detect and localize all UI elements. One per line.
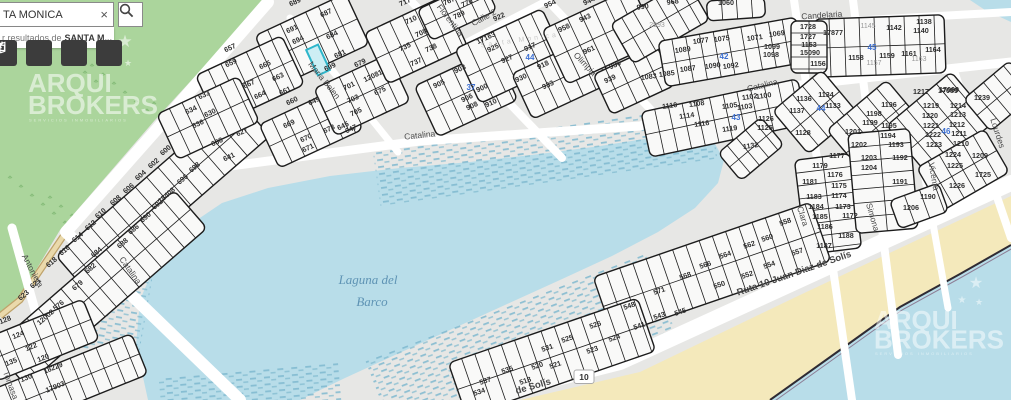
search-button[interactable] xyxy=(118,2,143,27)
parcel-number: 17877 xyxy=(823,28,843,37)
block-number-annotation: 45 xyxy=(868,43,877,52)
parcel-number: 1199 xyxy=(862,118,878,127)
parcel-number: 17099 xyxy=(939,85,959,94)
parcel-number: 1136 xyxy=(796,94,812,103)
parcel-number: 1175 xyxy=(831,181,847,190)
search-input-box: × xyxy=(0,2,114,27)
parcel-number: 1142 xyxy=(886,23,902,32)
parcel-number: 1194 xyxy=(880,131,896,140)
city-block xyxy=(706,0,765,21)
block-number-annotation: 43 xyxy=(732,113,741,122)
parcel-number: 1176 xyxy=(827,170,843,179)
block-number-annotation: 42 xyxy=(720,52,729,61)
parcel-number: 1164 xyxy=(925,45,941,54)
map-canvas[interactable]: 6896876916946846816996791208170170370567… xyxy=(0,0,1011,400)
star-icon: ★ xyxy=(975,297,983,307)
map-layers-button[interactable] xyxy=(96,40,122,66)
parcel-number: 1220 xyxy=(922,111,938,120)
star-icon: ★ xyxy=(958,295,967,306)
parcel-number: 1196 xyxy=(881,100,897,109)
parcel-number: 1186 xyxy=(817,222,833,231)
clear-search-icon[interactable]: × xyxy=(98,8,113,21)
block-number-annotation: 44 xyxy=(817,104,826,113)
parcel-number: 1183 xyxy=(806,192,822,201)
parcel-number: 1187 xyxy=(816,241,832,250)
parcel-number: 1225 xyxy=(947,161,963,170)
parcel-number: 1134 xyxy=(818,90,834,99)
parcel-number: 1217 xyxy=(913,87,929,96)
parcel-number: 1128 xyxy=(795,128,811,137)
parcel-number: 1725 xyxy=(975,170,991,179)
parcel-number: 1133 xyxy=(825,101,841,110)
watermark-line2: BROKERS xyxy=(28,90,158,120)
parcel-number: 1213 xyxy=(950,110,966,119)
block-number-annotation: 37 xyxy=(467,83,476,92)
parcel-number: 1203 xyxy=(861,153,877,162)
parcel-number: 15090 xyxy=(800,48,820,57)
parcel-number: 1177 xyxy=(829,151,845,160)
parcel-number: 1223 xyxy=(926,140,942,149)
parcel-number: 1137 xyxy=(789,106,805,115)
parcel-number: 1098 xyxy=(763,50,779,59)
parcel-number: 1201 xyxy=(845,127,861,136)
parcel-number: 1185 xyxy=(812,212,828,221)
parcel-number: 1172 xyxy=(842,211,858,220)
parcel-number: 1126 xyxy=(758,114,774,123)
parcel-number: 1192 xyxy=(892,153,908,162)
faded-parcel-number: 1157 xyxy=(866,60,881,67)
parcel-number: 1174 xyxy=(831,191,847,200)
parcel-number: 1060 xyxy=(718,0,734,7)
parcel-number: 1239 xyxy=(974,93,990,102)
parcel-number: 1181 xyxy=(802,177,818,186)
parcel-number: 1211 xyxy=(951,129,967,138)
parcel-number: 990 xyxy=(636,1,649,12)
parcel-number: 1159 xyxy=(879,51,895,60)
parcel-number: 1173 xyxy=(835,202,851,211)
measure-tool-button[interactable] xyxy=(61,40,87,66)
faded-parcel-number: 1145 xyxy=(860,23,875,30)
parcel-number: 1222 xyxy=(925,130,941,139)
search-input[interactable] xyxy=(0,9,98,21)
draw-tool-button[interactable] xyxy=(26,40,52,66)
parcel-number: 1138 xyxy=(916,17,932,26)
map-toolbar xyxy=(0,40,122,66)
parcel-number: 1158 xyxy=(848,53,864,62)
watermark-tagline: SERVICIOS INMOBILIARIOS xyxy=(29,117,128,122)
parcel-number: 1214 xyxy=(950,101,966,110)
parcel-number: 1179 xyxy=(812,161,828,170)
parcel-number: 1219 xyxy=(923,101,939,110)
parcel-number: 1190 xyxy=(920,192,936,201)
watermark-tagline: SERVICIOS INMOBILIARIOS xyxy=(875,351,974,356)
faded-parcel-number: 2993 xyxy=(649,22,665,29)
parcel-number: 1221 xyxy=(923,121,939,130)
parcel-number: 1209 xyxy=(972,151,988,160)
parcel-number: 1198 xyxy=(866,109,882,118)
parcel-number: 1202 xyxy=(851,140,867,149)
star-icon: ★ xyxy=(969,275,983,292)
parcel-number: 1191 xyxy=(892,177,908,186)
block-number-annotation: 46 xyxy=(942,127,951,136)
parcel-number: 1728 xyxy=(800,22,816,31)
lagoon-label: Laguna del xyxy=(338,272,398,287)
faded-parcel-number: 1163 xyxy=(911,56,926,63)
parcel-number: 1210 xyxy=(953,139,969,148)
route-shield-number: 10 xyxy=(579,372,589,382)
parcel-number: 1204 xyxy=(861,163,877,172)
parcel-number: 1140 xyxy=(913,26,929,35)
parcel-number: 1224 xyxy=(945,150,961,159)
parcel-number: 1125 xyxy=(757,123,773,132)
parcel-number: 1193 xyxy=(888,140,904,149)
parcel-number: 1156 xyxy=(810,59,826,68)
star-icon: ★ xyxy=(124,58,132,68)
map-app: 6896876916946846816996791208170170370567… xyxy=(0,0,1011,400)
parcel-number: 1226 xyxy=(949,181,965,190)
parcel-number: 1206 xyxy=(903,203,919,212)
lagoon-label: Barco xyxy=(356,294,388,309)
parcel-number: 1188 xyxy=(838,231,854,240)
parcel-number: 1195 xyxy=(881,121,897,130)
parcel-number: 1212 xyxy=(949,120,965,129)
block-number-annotation: 44 xyxy=(526,53,535,62)
parcel-number: 1184 xyxy=(808,202,824,211)
